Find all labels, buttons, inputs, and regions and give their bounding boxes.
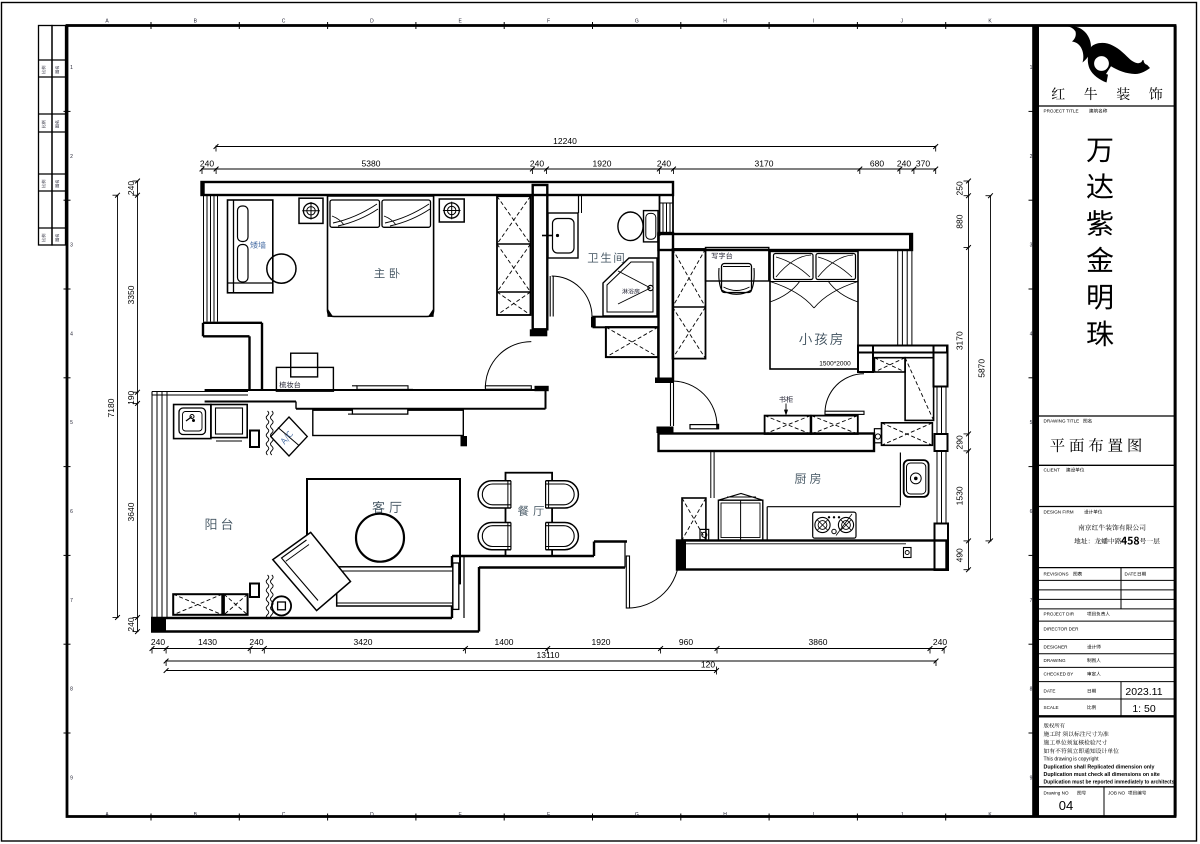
svg-text:7180: 7180 (106, 398, 116, 417)
svg-text:9: 9 (70, 775, 73, 781)
svg-text:I: I (813, 19, 814, 25)
svg-text:240: 240 (249, 637, 263, 647)
svg-text:G: G (635, 19, 639, 25)
svg-text:F: F (547, 812, 550, 818)
svg-text:240: 240 (126, 181, 136, 195)
svg-text:240: 240 (200, 159, 214, 169)
svg-text:DRAWING: DRAWING (1044, 658, 1066, 663)
svg-text:I: I (813, 812, 814, 818)
svg-text:3350: 3350 (126, 285, 136, 304)
svg-text:290: 290 (955, 435, 965, 449)
svg-text:5: 5 (70, 420, 73, 426)
svg-text:5: 5 (1030, 420, 1033, 426)
svg-text:SCALE: SCALE (1044, 705, 1059, 710)
svg-text:CHECKED BY: CHECKED BY (1044, 672, 1074, 677)
svg-text:1920: 1920 (593, 159, 612, 169)
svg-text:H: H (723, 19, 727, 25)
svg-text:04: 04 (1059, 798, 1073, 813)
svg-text:490: 490 (955, 548, 965, 562)
svg-text:2: 2 (70, 154, 73, 160)
svg-text:240: 240 (933, 637, 947, 647)
svg-text:3170: 3170 (955, 331, 965, 350)
svg-text:120: 120 (701, 660, 715, 670)
svg-text:JOB NO: JOB NO (1108, 791, 1126, 796)
svg-text:960: 960 (679, 637, 693, 647)
svg-text:This drawing is copyright: This drawing is copyright (1044, 757, 1100, 763)
svg-text:PROJECT TITLE: PROJECT TITLE (1044, 109, 1079, 114)
svg-text:Duplication shall Replicated d: Duplication shall Replicated dimension o… (1044, 765, 1155, 771)
svg-text:3: 3 (1030, 243, 1033, 249)
svg-text:1430: 1430 (198, 637, 217, 647)
svg-text:240: 240 (657, 159, 671, 169)
svg-text:240: 240 (151, 637, 165, 647)
svg-text:4: 4 (70, 331, 73, 337)
svg-text:3860: 3860 (809, 637, 828, 647)
svg-text:DATE: DATE (1125, 572, 1137, 577)
svg-text:12240: 12240 (553, 136, 577, 146)
svg-text:F: F (547, 19, 550, 25)
svg-text:190: 190 (126, 390, 136, 404)
svg-text:D: D (370, 812, 374, 818)
svg-text:Duplication must be reported i: Duplication must be reported immediately… (1044, 780, 1175, 786)
svg-text:PROJECT DIR: PROJECT DIR (1044, 612, 1075, 617)
svg-text:240: 240 (530, 159, 544, 169)
svg-text:CLIENT: CLIENT (1044, 468, 1061, 473)
svg-text:8: 8 (1030, 687, 1033, 693)
svg-text:5380: 5380 (362, 159, 381, 169)
svg-text:2023.11: 2023.11 (1125, 686, 1162, 698)
svg-text:DRAWING TITLE: DRAWING TITLE (1044, 419, 1080, 424)
svg-text:240: 240 (126, 617, 136, 631)
svg-text:1: 50: 1: 50 (1132, 703, 1156, 715)
svg-text:4: 4 (1030, 331, 1033, 337)
svg-text:880: 880 (955, 214, 965, 228)
svg-text:DIRECTOR DER: DIRECTOR DER (1044, 627, 1080, 632)
svg-text:1530: 1530 (955, 486, 965, 505)
svg-text:1500*2000: 1500*2000 (819, 361, 851, 368)
svg-text:3170: 3170 (755, 159, 774, 169)
svg-text:G: G (635, 812, 639, 818)
svg-text:680: 680 (870, 159, 884, 169)
svg-text:DESIGNER: DESIGNER (1044, 645, 1069, 650)
svg-text:3420: 3420 (354, 637, 373, 647)
svg-text:6: 6 (1030, 509, 1033, 515)
svg-text:1400: 1400 (495, 637, 514, 647)
svg-text:DATE: DATE (1044, 689, 1056, 694)
svg-text:Drawing NO: Drawing NO (1044, 791, 1069, 796)
svg-text:C: C (282, 19, 286, 25)
svg-text:Duplication must check all dim: Duplication must check all dimensions on… (1044, 772, 1160, 778)
svg-text:8: 8 (70, 687, 73, 693)
svg-text:9: 9 (1030, 775, 1033, 781)
svg-text:250: 250 (955, 181, 965, 195)
svg-text:DESIGN FIRM: DESIGN FIRM (1044, 510, 1074, 515)
svg-text:13110: 13110 (536, 650, 559, 660)
svg-text:H: H (723, 812, 727, 818)
svg-text:6: 6 (70, 509, 73, 515)
svg-text:REVISIONS: REVISIONS (1044, 572, 1069, 577)
svg-text:C: C (282, 812, 286, 818)
svg-text:3: 3 (70, 243, 73, 249)
svg-text:7: 7 (1030, 598, 1033, 604)
svg-text:D: D (370, 19, 374, 25)
svg-text:5870: 5870 (977, 359, 987, 378)
svg-text:1: 1 (70, 65, 73, 71)
svg-text:240: 240 (897, 159, 911, 169)
svg-text:370: 370 (916, 159, 930, 169)
svg-text:7: 7 (70, 598, 73, 604)
svg-text:2: 2 (1030, 154, 1033, 160)
svg-text:1: 1 (1030, 65, 1033, 71)
svg-text:3640: 3640 (126, 502, 136, 521)
svg-text:1920: 1920 (592, 637, 611, 647)
